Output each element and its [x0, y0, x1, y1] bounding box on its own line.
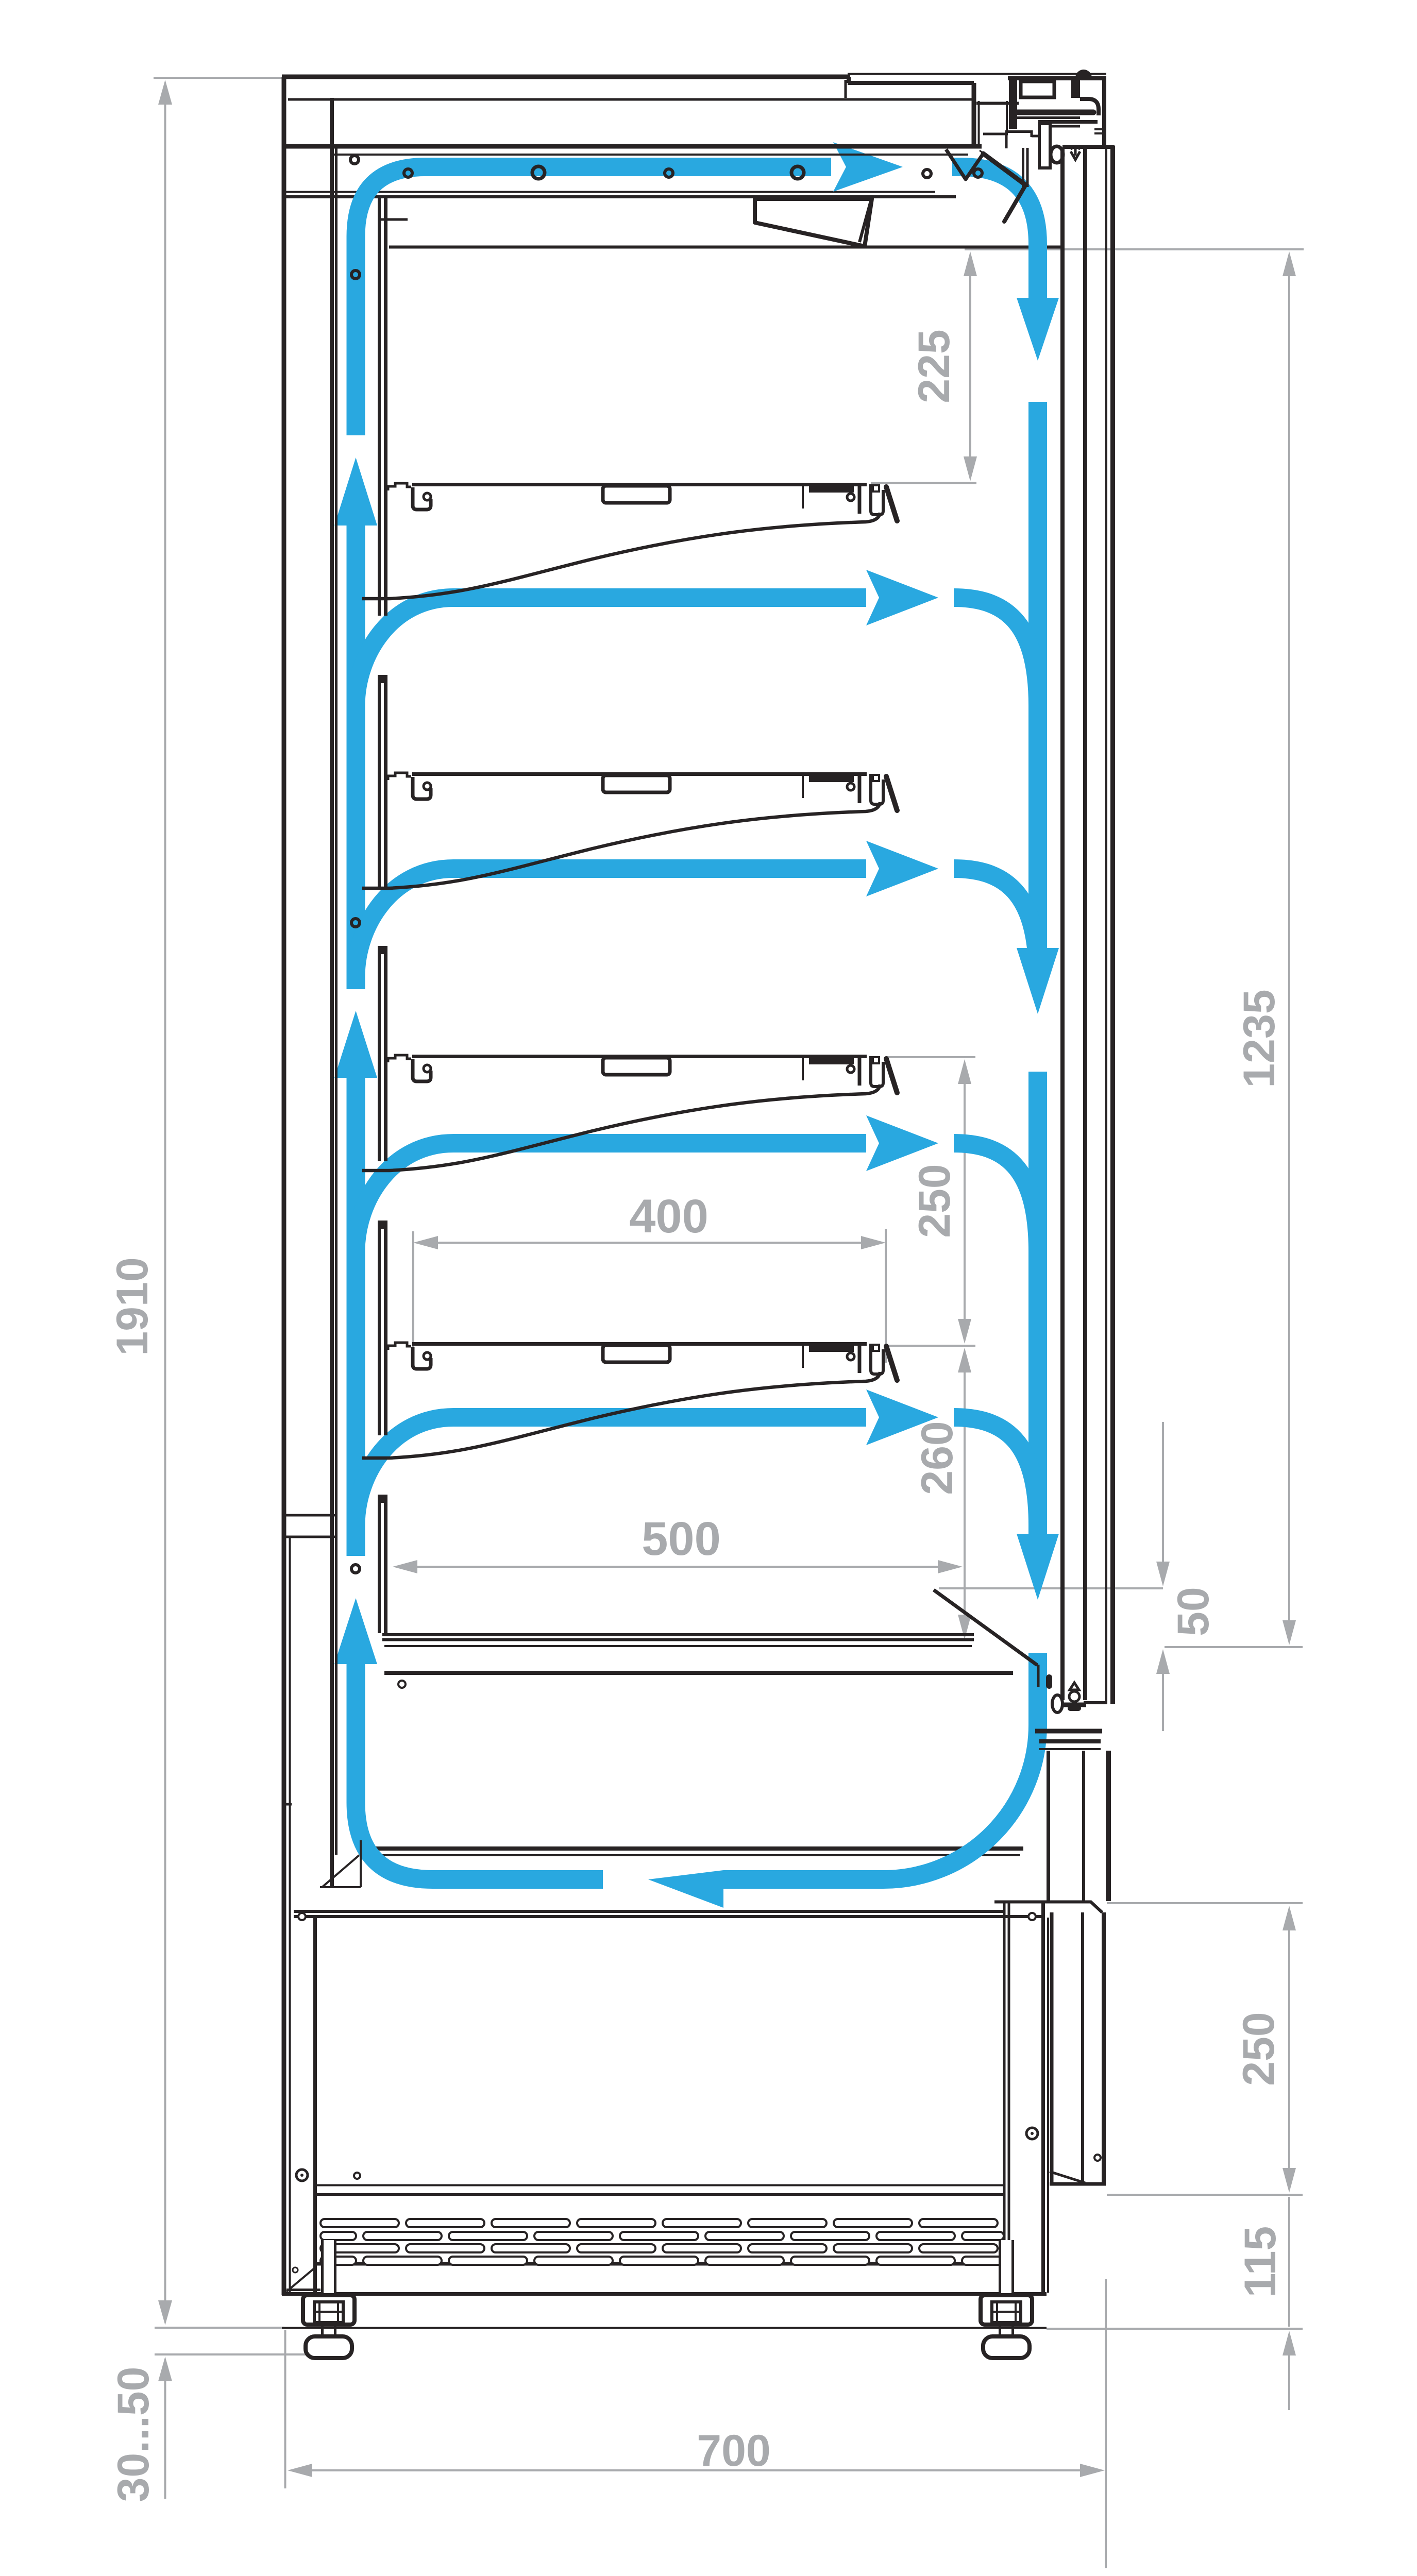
svg-text:50: 50: [1169, 1587, 1218, 1636]
svg-text:115: 115: [1236, 2226, 1285, 2298]
svg-text:30...50: 30...50: [109, 2367, 158, 2502]
svg-text:250: 250: [1234, 2012, 1284, 2086]
svg-text:400: 400: [629, 1190, 709, 1243]
svg-text:1235: 1235: [1235, 989, 1284, 1088]
svg-text:700: 700: [697, 2426, 771, 2476]
svg-text:1910: 1910: [108, 1257, 157, 1355]
svg-text:260: 260: [913, 1421, 962, 1495]
svg-text:225: 225: [909, 329, 959, 403]
svg-text:250: 250: [910, 1164, 959, 1238]
svg-text:500: 500: [642, 1513, 721, 1565]
